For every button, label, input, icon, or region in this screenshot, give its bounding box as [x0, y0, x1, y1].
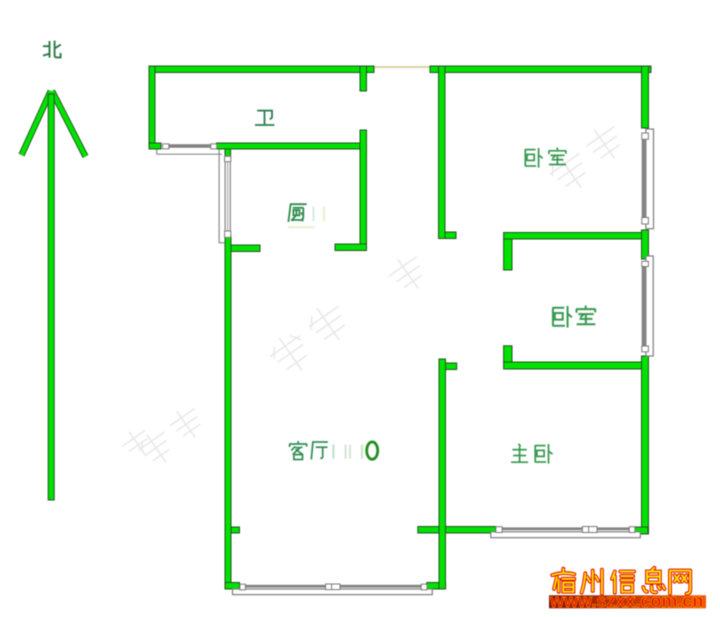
svg-text:www.szxx.com.cn: www.szxx.com.cn	[549, 591, 703, 611]
